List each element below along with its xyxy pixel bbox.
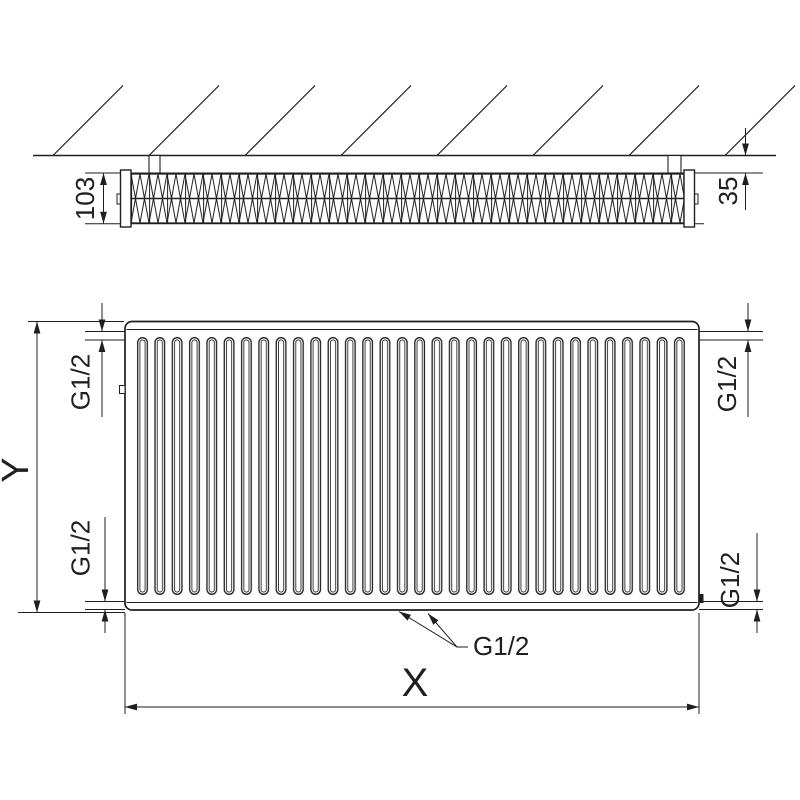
dimension-g12-top-left: G1/2	[66, 303, 106, 417]
g12-label-bottom-left: G1/2	[66, 520, 96, 576]
wall-hatching	[53, 86, 795, 156]
arrowhead-down	[99, 320, 106, 332]
hatch-line	[533, 86, 603, 156]
height-label: Y	[0, 457, 37, 482]
arrowhead-down	[754, 590, 761, 602]
hatch-line	[149, 86, 219, 156]
side-notch-right	[699, 594, 704, 603]
dimension-g12-bottom-left: G1/2	[66, 517, 109, 633]
connection-stub-top-left	[85, 332, 125, 341]
arrowhead-up	[102, 610, 109, 622]
arrowhead-up	[100, 173, 107, 185]
hatch-line	[629, 86, 699, 156]
arrowhead-up	[34, 322, 41, 334]
top-view: 103 35	[33, 86, 795, 228]
arrowhead-up	[754, 610, 761, 622]
arrowhead-down	[742, 144, 749, 156]
technical-drawing-canvas: 103 35	[0, 0, 800, 800]
wall-bracket-left	[149, 156, 160, 174]
arrowhead-up	[99, 340, 106, 352]
g12-label-bottom-center: G1/2	[473, 631, 529, 661]
arrowhead-down	[100, 212, 107, 224]
dimension-height-y: Y	[0, 322, 125, 613]
wall-distance-label: 35	[713, 177, 743, 206]
depth-label: 103	[70, 177, 100, 220]
dimension-g12-top-right: G1/2	[712, 303, 751, 417]
hatch-line	[725, 86, 795, 156]
g12-label-top-right: G1/2	[712, 356, 742, 412]
callout-g12-bottom-center: G1/2	[397, 609, 529, 661]
hatch-line	[53, 86, 123, 156]
g12-label-bottom-right: G1/2	[715, 552, 745, 608]
dimension-wall-distance-35: 35	[713, 128, 749, 210]
top-view-radiator-body	[117, 170, 698, 227]
arrowhead-down	[34, 601, 41, 613]
hatch-line	[437, 86, 507, 156]
connection-stub-bottom-left	[85, 602, 125, 610]
dimension-width-x: X	[125, 613, 699, 714]
end-cap-left	[121, 170, 132, 227]
radiator-drawing-svg: 103 35	[0, 0, 800, 800]
g12-label-top-left: G1/2	[66, 354, 96, 410]
channel-pattern-area	[135, 337, 689, 595]
hatch-line	[245, 86, 315, 156]
arrowhead-down	[745, 320, 752, 332]
connection-stub-top-right	[699, 332, 763, 341]
width-label: X	[402, 661, 429, 705]
front-view-radiator-body	[120, 322, 704, 611]
dimension-depth-103: 103	[70, 173, 107, 224]
wall-bracket-right	[668, 156, 681, 174]
arrowhead-up	[745, 340, 752, 352]
end-cap-right	[684, 170, 695, 227]
dimension-g12-bottom-right: G1/2	[715, 533, 760, 633]
front-view: Y X G1/2 G1/2	[0, 303, 763, 714]
hatch-line	[341, 86, 411, 156]
arrowhead-up	[742, 173, 749, 185]
arrowhead-down	[102, 590, 109, 602]
arrowhead-right	[687, 704, 699, 711]
arrowhead-left	[125, 704, 137, 711]
side-notch-left	[120, 386, 126, 394]
